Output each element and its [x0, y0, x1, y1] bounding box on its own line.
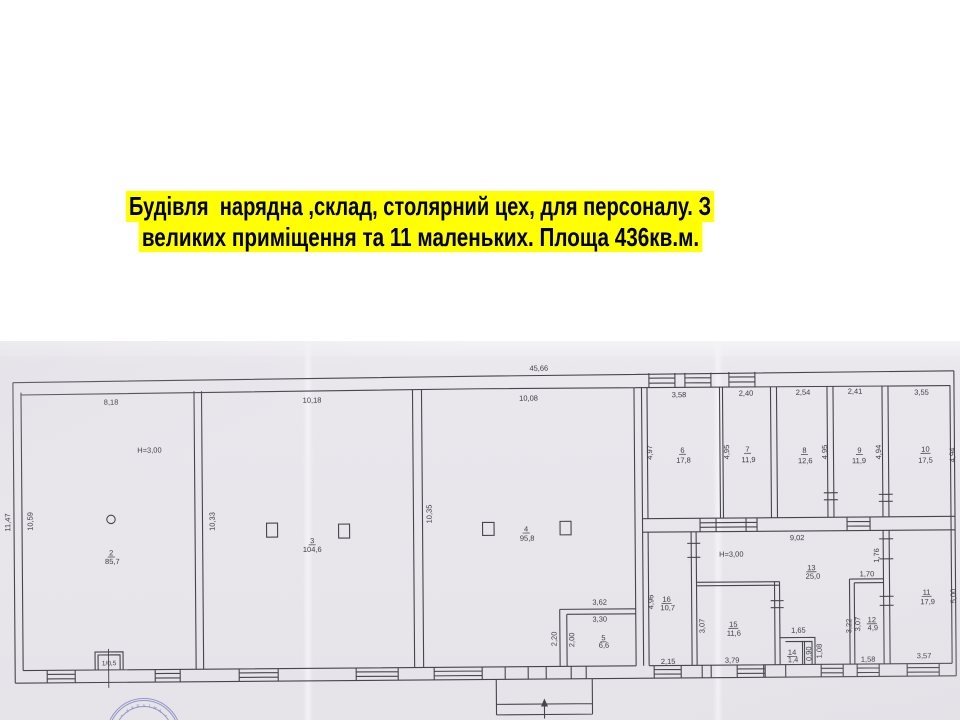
- svg-text:1,65: 1,65: [791, 626, 806, 635]
- svg-text:4,95: 4,95: [722, 445, 731, 460]
- svg-text:4,94: 4,94: [874, 445, 883, 460]
- svg-text:1,08: 1,08: [815, 644, 824, 659]
- svg-text:А: А: [142, 703, 145, 708]
- svg-text:5,00: 5,00: [949, 589, 958, 604]
- svg-text:104,6: 104,6: [303, 545, 322, 554]
- svg-text:3,22: 3,22: [844, 619, 853, 634]
- svg-text:45,66: 45,66: [529, 364, 548, 373]
- svg-text:1,70: 1,70: [860, 569, 875, 578]
- svg-text:4,97: 4,97: [645, 445, 654, 460]
- svg-text:3,55: 3,55: [914, 388, 929, 397]
- svg-text:11,6: 11,6: [727, 629, 741, 638]
- svg-text:2,15: 2,15: [661, 657, 676, 666]
- svg-text:3,07: 3,07: [853, 617, 862, 632]
- svg-text:10,7: 10,7: [660, 603, 675, 612]
- svg-text:12,6: 12,6: [798, 456, 813, 465]
- svg-text:3,58: 3,58: [672, 390, 687, 399]
- svg-text:3,57: 3,57: [917, 651, 932, 660]
- svg-text:4,9: 4,9: [868, 623, 879, 632]
- svg-text:4,94: 4,94: [948, 448, 957, 463]
- svg-text:11,9: 11,9: [741, 455, 755, 464]
- svg-text:95,8: 95,8: [520, 534, 535, 543]
- svg-text:17,8: 17,8: [676, 456, 691, 465]
- svg-text:10,08: 10,08: [519, 394, 538, 403]
- svg-text:H=3,00: H=3,00: [137, 446, 161, 455]
- svg-text:11: 11: [923, 588, 931, 597]
- svg-text:11,9: 11,9: [852, 456, 866, 465]
- svg-text:H=3,00: H=3,00: [719, 550, 743, 559]
- svg-text:1,4: 1,4: [788, 655, 799, 664]
- svg-text:2,40: 2,40: [739, 389, 754, 398]
- svg-text:8,18: 8,18: [104, 398, 119, 407]
- svg-text:2,00: 2,00: [567, 633, 576, 648]
- svg-text:7: 7: [745, 445, 749, 454]
- svg-text:1,76: 1,76: [872, 548, 881, 563]
- svg-text:9,02: 9,02: [790, 533, 805, 542]
- svg-text:3,30: 3,30: [592, 615, 607, 624]
- svg-text:10,59: 10,59: [26, 512, 35, 531]
- svg-text:17,9: 17,9: [920, 597, 935, 606]
- svg-text:9: 9: [857, 446, 861, 455]
- svg-text:1,58: 1,58: [861, 655, 876, 664]
- svg-text:4: 4: [524, 524, 528, 533]
- svg-text:1/0,5: 1/0,5: [102, 660, 117, 667]
- svg-text:2,41: 2,41: [848, 387, 863, 396]
- svg-text:10: 10: [921, 445, 929, 454]
- svg-text:6: 6: [680, 446, 684, 455]
- svg-text:2,20: 2,20: [550, 632, 559, 647]
- svg-text:17,5: 17,5: [918, 456, 933, 465]
- svg-text:10,33: 10,33: [208, 512, 217, 531]
- svg-text:6,6: 6,6: [599, 641, 610, 650]
- svg-text:25,0: 25,0: [806, 572, 821, 581]
- svg-text:11,47: 11,47: [3, 513, 12, 531]
- svg-text:3: 3: [310, 536, 314, 545]
- svg-text:3,79: 3,79: [725, 656, 740, 665]
- svg-text:15: 15: [729, 620, 737, 629]
- svg-text:3,07: 3,07: [697, 619, 706, 634]
- svg-text:8: 8: [802, 446, 806, 455]
- svg-text:10,18: 10,18: [303, 396, 322, 405]
- svg-text:85,7: 85,7: [105, 557, 120, 566]
- svg-text:10,35: 10,35: [425, 505, 434, 524]
- svg-text:4,95: 4,95: [820, 445, 829, 460]
- svg-text:0,90: 0,90: [804, 646, 813, 661]
- svg-text:2,54: 2,54: [796, 388, 811, 397]
- svg-text:4,96: 4,96: [646, 595, 655, 610]
- svg-text:3,62: 3,62: [592, 598, 607, 607]
